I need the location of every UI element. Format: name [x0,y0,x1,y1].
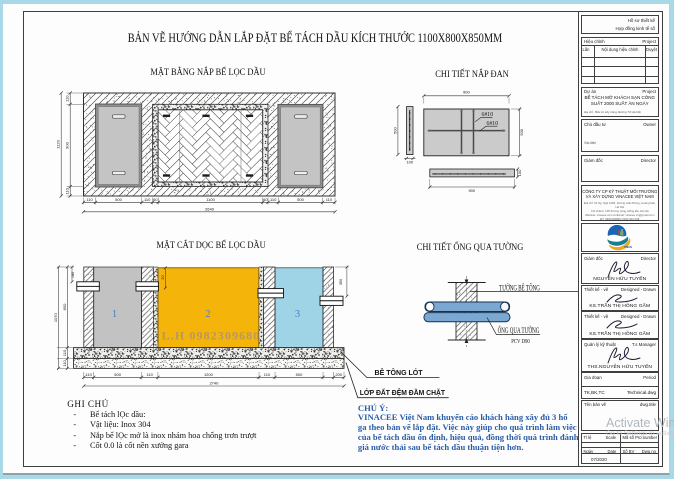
svg-text:900: 900 [468,188,475,193]
svg-text:500: 500 [519,128,524,135]
svg-text:TƯỜNG BÊ TÔNG: TƯỜNG BÊ TÔNG [499,283,540,293]
svg-text:6#10: 6#10 [482,112,494,118]
svg-text:6#10: 6#10 [487,121,499,127]
svg-text:LỚP ĐẤT ĐỆM ĐẦM CHẶT: LỚP ĐẤT ĐỆM ĐẦM CHẶT [360,387,446,397]
svg-text:60: 60 [263,197,268,202]
svg-text:500: 500 [392,126,397,133]
svg-text:500: 500 [297,197,304,202]
svg-text:110: 110 [147,372,154,377]
svg-text:110: 110 [86,372,93,377]
svg-text:110: 110 [86,197,93,202]
svg-text:2: 2 [205,309,210,320]
svg-text:1120: 1120 [56,139,61,148]
svg-text:500: 500 [296,372,303,377]
svg-text:20: 20 [161,275,165,279]
svg-text:110: 110 [144,197,151,202]
svg-text:110: 110 [264,372,271,377]
svg-text:1100: 1100 [206,197,215,202]
svg-text:ỐNG QUA TƯỜNG: ỐNG QUA TƯỜNG [498,326,540,336]
svg-text:180: 180 [71,272,75,278]
svg-text:850: 850 [62,303,67,310]
svg-text:2640: 2640 [205,206,215,211]
svg-text:L.H 0982309680: L.H 0982309680 [162,329,261,343]
svg-text:110: 110 [65,95,70,102]
svg-text:110: 110 [62,349,67,356]
svg-text:900: 900 [65,141,70,148]
svg-text:2740: 2740 [209,381,219,386]
svg-text:500: 500 [114,372,121,377]
svg-text:100: 100 [517,169,522,176]
svg-text:350: 350 [339,279,343,285]
svg-text:900: 900 [463,90,470,95]
svg-text:60: 60 [153,197,158,202]
svg-text:PCV D90: PCV D90 [511,339,530,346]
svg-text:110: 110 [270,197,277,202]
svg-text:3: 3 [295,309,300,320]
svg-text:500: 500 [115,197,122,202]
svg-text:200: 200 [335,372,342,377]
svg-text:110: 110 [326,197,333,202]
svg-text:1200: 1200 [204,372,214,377]
svg-text:110: 110 [65,187,70,194]
svg-text:BÊ TÔNG LÓT: BÊ TÔNG LÓT [374,368,423,377]
svg-text:110: 110 [62,359,67,366]
svg-text:VNCE: VNCE [624,245,632,249]
svg-text:1: 1 [112,309,117,320]
svg-text:100: 100 [406,159,413,164]
svg-text:1070: 1070 [53,312,58,322]
